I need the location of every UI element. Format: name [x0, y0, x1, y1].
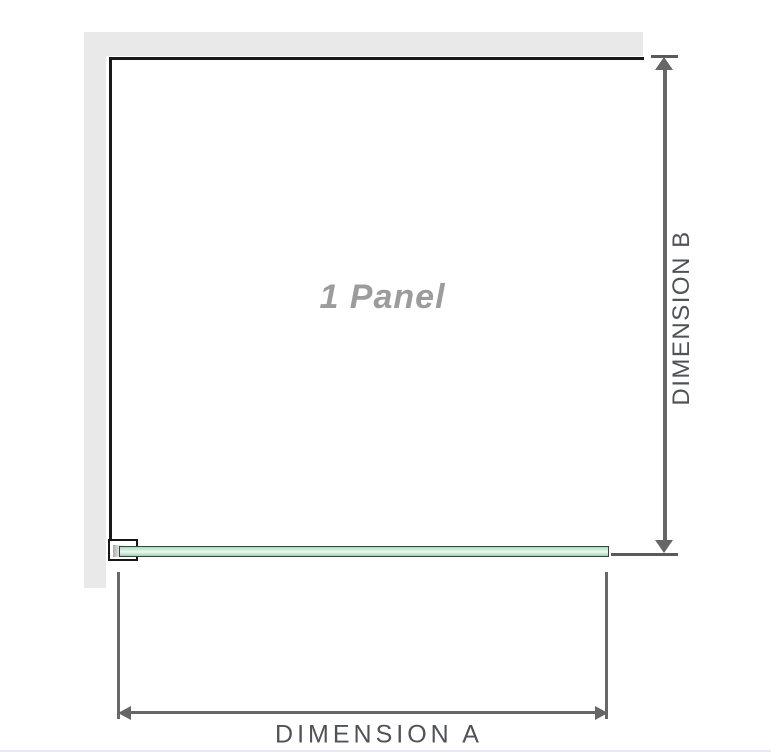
panel-dimension-diagram: 1 Panel DIMENSION B DIMENSION A	[0, 0, 771, 755]
dimension-a-line	[131, 711, 595, 714]
dimension-a-extension-right	[605, 572, 608, 719]
wall-left-strip	[84, 32, 106, 588]
wall-top-strip	[84, 32, 643, 56]
dimension-a-label: DIMENSION A	[275, 721, 483, 750]
panel-count-label: 1 Panel	[109, 278, 644, 317]
panel-outline-top	[109, 57, 644, 60]
arrow-down-icon	[655, 540, 673, 553]
dimension-b-bottom-tick	[611, 553, 678, 556]
arrow-up-icon	[655, 57, 673, 70]
dimension-b-line	[663, 66, 667, 544]
dimension-b-label: DIMENSION B	[668, 230, 696, 405]
bottom-edge-rule	[0, 750, 771, 752]
arrow-left-icon	[118, 706, 131, 720]
arrow-right-icon	[595, 706, 608, 720]
dimension-a-extension-left	[117, 572, 120, 719]
glass-panel-bar	[119, 546, 609, 557]
